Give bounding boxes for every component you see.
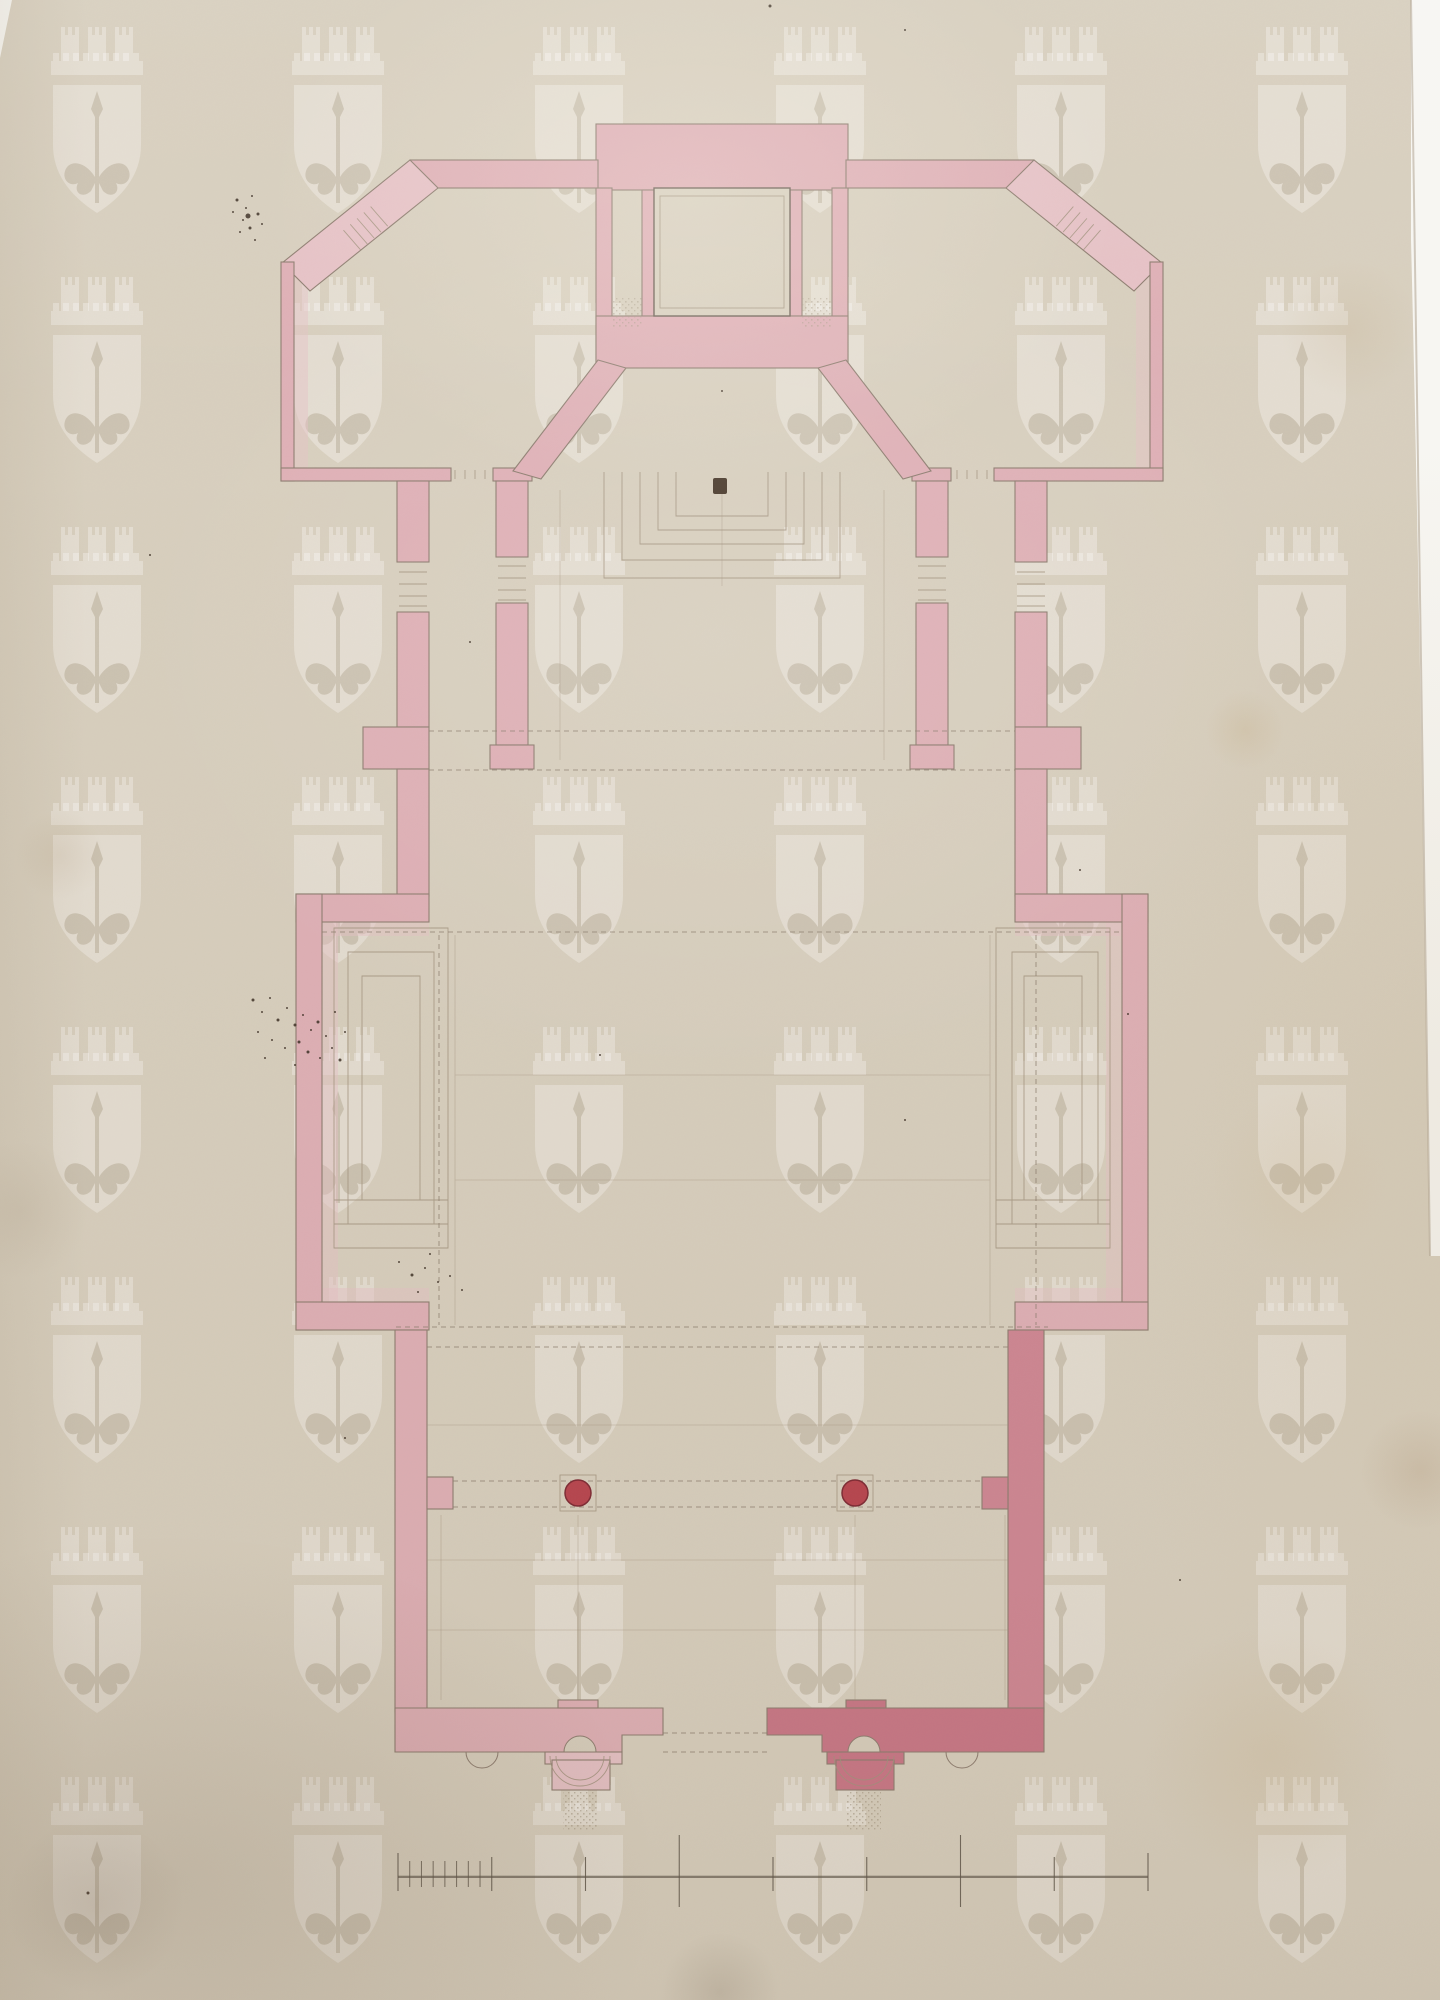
paper-grain <box>0 0 1440 2000</box>
plan-drawing-svg <box>0 0 1440 2000</box>
scanned-drawing-canvas <box>0 0 1440 2000</box>
